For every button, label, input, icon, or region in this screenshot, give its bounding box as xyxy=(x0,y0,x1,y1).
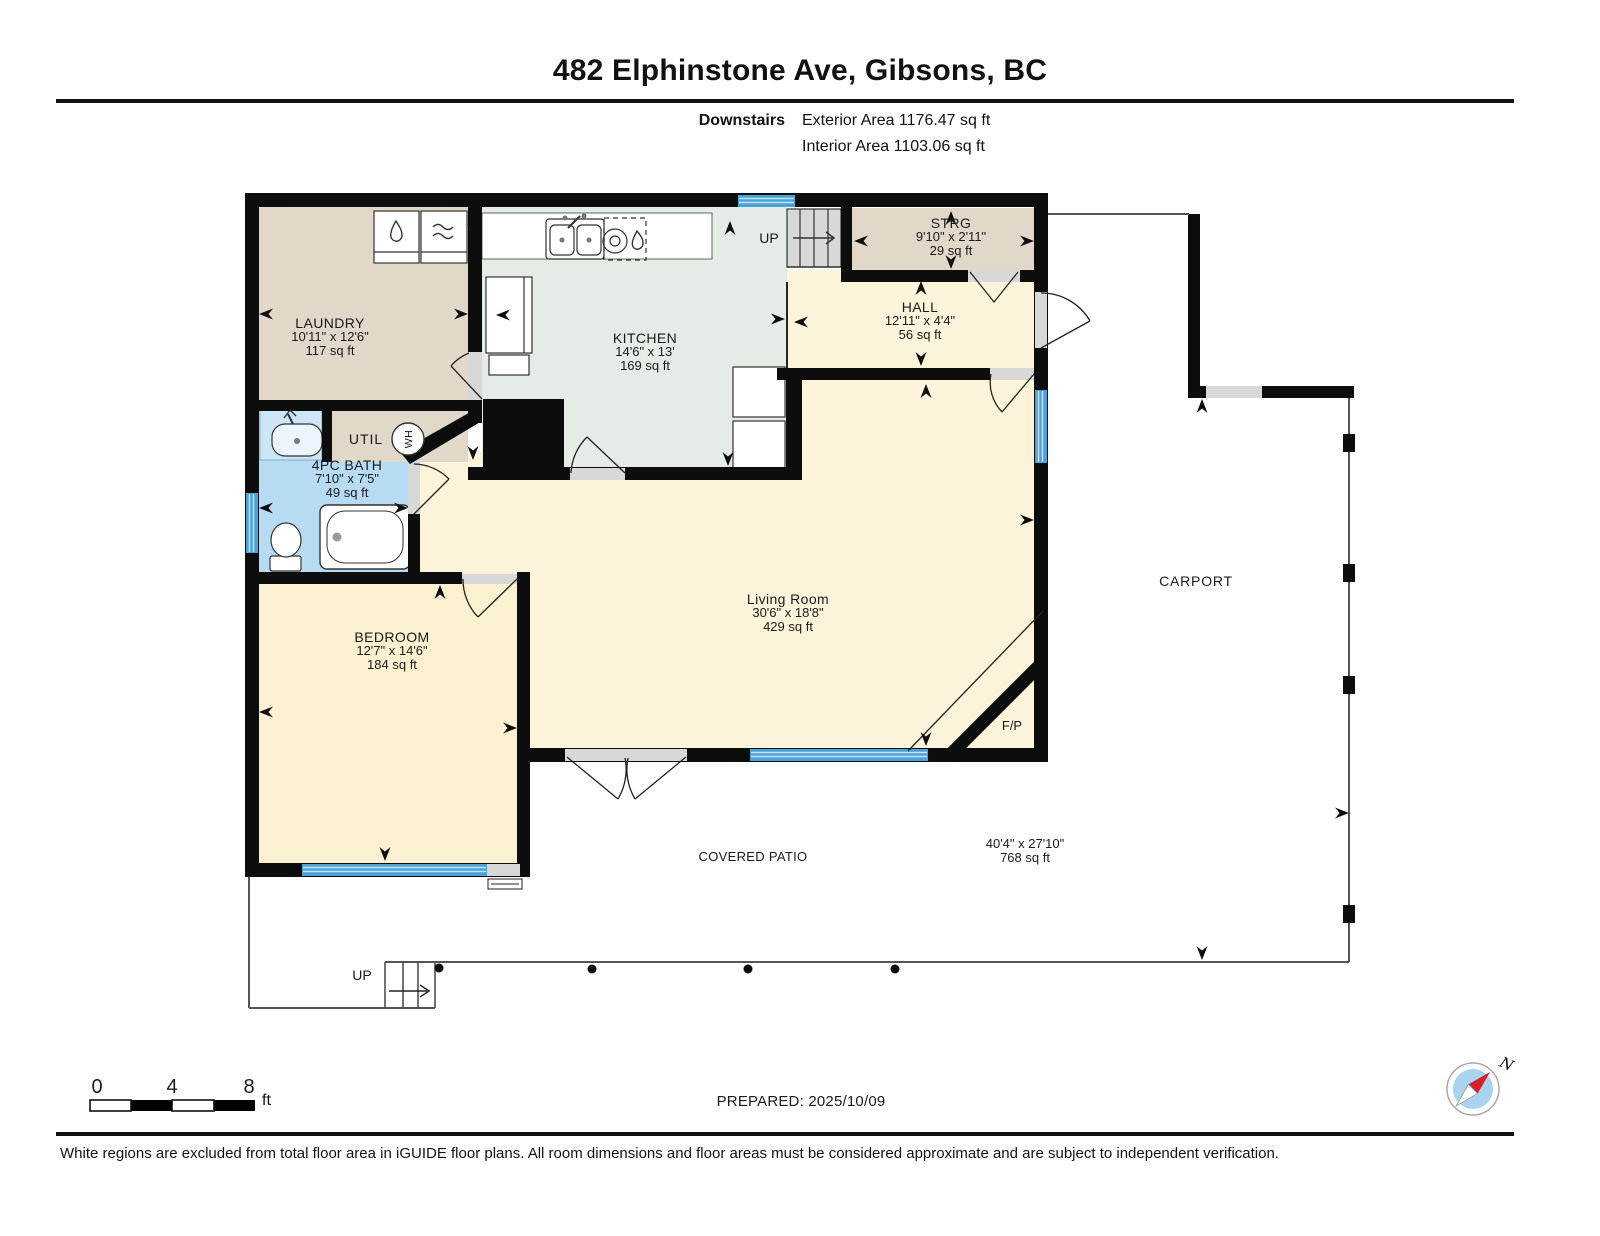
scale-tick-8: 8 xyxy=(243,1076,254,1099)
patio-area-line: 768 sq ft xyxy=(986,851,1065,865)
carport-label: CARPORT xyxy=(1159,573,1233,589)
room-name: KITCHEN xyxy=(613,331,677,345)
room-name: LAUNDRY xyxy=(291,316,369,330)
dryer-icon xyxy=(421,211,467,263)
room-label-laundry: LAUNDRY 10'11" x 12'6" 117 sq ft xyxy=(291,316,369,358)
kitchen-sink-icon xyxy=(546,214,604,260)
water-heater-label: WH xyxy=(403,430,415,449)
floor-label: Downstairs xyxy=(585,112,785,130)
util-label: UTIL xyxy=(349,431,383,447)
toilet-icon xyxy=(270,523,301,571)
room-label-bedroom: BEDROOM 12'7" x 14'6" 184 sq ft xyxy=(354,630,429,672)
room-dims: 30'6" x 18'8" xyxy=(747,606,829,620)
room-label-bath: 4PC BATH 7'10" x 7'5" 49 sq ft xyxy=(312,458,383,500)
window-bedroom-bottom xyxy=(302,864,487,876)
room-name: BEDROOM xyxy=(354,630,429,644)
kitchen-island xyxy=(483,399,564,478)
up-label-bottom: UP xyxy=(352,967,371,983)
window-living-bottom xyxy=(750,749,928,761)
page-title: 482 Elphinstone Ave, Gibsons, BC xyxy=(0,54,1600,88)
room-area: 56 sq ft xyxy=(885,328,955,342)
room-label-storage: STRG 9'10" x 2'11" 29 sq ft xyxy=(916,216,986,258)
header-divider xyxy=(56,99,1514,103)
room-name: HALL xyxy=(885,300,955,314)
window-bath-left xyxy=(246,493,258,553)
scale-tick-0: 0 xyxy=(91,1076,102,1099)
patio-dims-line: 40'4" x 27'10" xyxy=(986,837,1065,851)
room-dims: 9'10" x 2'11" xyxy=(916,230,986,244)
water-heater-icon: WH xyxy=(392,423,424,455)
scale-unit: ft xyxy=(262,1092,271,1110)
room-label-hall: HALL 12'11" x 4'4" 56 sq ft xyxy=(885,300,955,342)
kitchen-cabinet-small xyxy=(489,355,529,375)
room-label-kitchen: KITCHEN 14'6" x 13' 169 sq ft xyxy=(613,331,677,373)
room-dims: 12'7" x 14'6" xyxy=(354,644,429,658)
interior-area: Interior Area 1103.06 sq ft xyxy=(802,138,985,156)
stairs-down-icon xyxy=(385,962,435,1008)
bathtub-icon xyxy=(320,505,410,569)
room-name: STRG xyxy=(916,216,986,230)
room-label-living: Living Room 30'6" x 18'8" 429 sq ft xyxy=(747,592,829,634)
room-dims: 7'10" x 7'5" xyxy=(312,472,383,486)
room-dims: 14'6" x 13' xyxy=(613,345,677,359)
room-name: 4PC BATH xyxy=(312,458,383,472)
room-area: 169 sq ft xyxy=(613,359,677,373)
compass-icon xyxy=(1447,1063,1499,1115)
patio-door-right xyxy=(627,757,686,799)
window-living-right xyxy=(1035,390,1047,463)
up-label-top: UP xyxy=(759,230,778,246)
room-area: 429 sq ft xyxy=(747,620,829,634)
floor-plan-page: WH xyxy=(0,0,1600,1236)
scale-bar xyxy=(90,1100,255,1111)
room-area: 184 sq ft xyxy=(354,658,429,672)
exterior-area: Exterior Area 1176.47 sq ft xyxy=(802,112,990,130)
disclaimer-text: White regions are excluded from total fl… xyxy=(60,1145,1279,1162)
scale-tick-4: 4 xyxy=(166,1076,177,1099)
room-area: 117 sq ft xyxy=(291,344,369,358)
room-area: 49 sq ft xyxy=(312,486,383,500)
patio-dims: 40'4" x 27'10" 768 sq ft xyxy=(986,837,1065,865)
washer-icon xyxy=(374,211,419,263)
stairs-up-icon xyxy=(787,209,841,267)
covered-patio-label: COVERED PATIO xyxy=(699,849,808,864)
window-kitchen-top xyxy=(738,195,795,207)
kitchen-cabinet xyxy=(486,277,532,353)
patio-door-left xyxy=(567,757,626,799)
fireplace-label: F/P xyxy=(1002,718,1022,733)
room-dims: 12'11" x 4'4" xyxy=(885,314,955,328)
prepared-date: PREPARED: 2025/10/09 xyxy=(717,1093,886,1110)
carport-wall-v xyxy=(1188,214,1200,392)
room-area: 29 sq ft xyxy=(916,244,986,258)
room-dims: 10'11" x 12'6" xyxy=(291,330,369,344)
room-name: Living Room xyxy=(747,592,829,606)
footer-divider xyxy=(56,1132,1514,1136)
bathroom-sink-icon xyxy=(260,406,322,460)
